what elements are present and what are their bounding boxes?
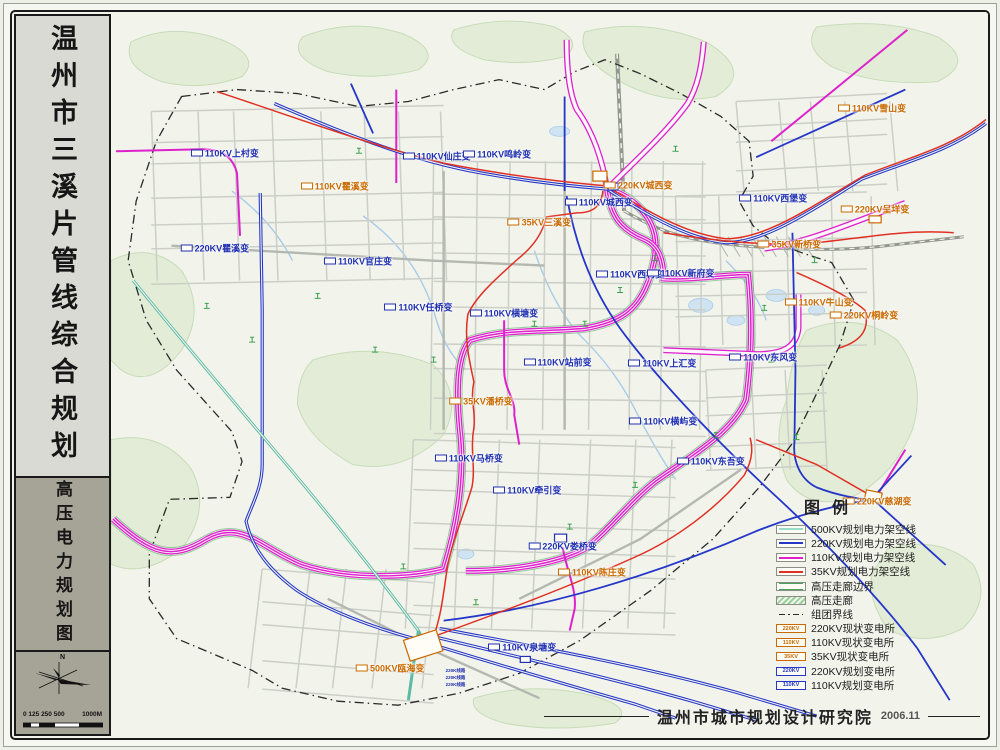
substation-label: 110KV牛山变 — [785, 296, 853, 309]
map-canvas: 110KV上村变110KV瞿溪变220KV瞿溪变110KV官庄变110KV任桥变… — [111, 12, 988, 738]
substation-name: 35KV三溪变 — [522, 215, 572, 228]
substation-name: 110KV横塘变 — [484, 307, 538, 320]
route-note: 220K线路 — [446, 675, 466, 681]
substation-name: 110KV泉塘变 — [502, 640, 556, 653]
legend-row: 500KV规划电力架空线 — [776, 524, 978, 535]
substation-name: 500KV瓯海变 — [370, 662, 425, 675]
substation-name: 110KV牵引变 — [507, 484, 561, 497]
substation-label: 110KV城西变 — [565, 195, 633, 208]
legend-symbol-station-icon: 220KV — [776, 624, 806, 633]
footer: 温州市城市规划设计研究院 2006.11 — [544, 704, 980, 728]
substation-label: 110KV仙庄变 — [403, 150, 471, 163]
substation-marker-icon — [301, 183, 313, 190]
substation-label: 110KV泉塘变 — [488, 640, 556, 653]
substation-marker-icon — [629, 417, 641, 424]
substation-marker-icon — [596, 270, 608, 277]
substation-name: 110KV上村变 — [205, 147, 259, 160]
substation-label: 35KV三溪变 — [508, 215, 572, 228]
legend-symbol-line-icon — [776, 553, 806, 562]
legend-row: 220KV220KV规划变电所 — [776, 666, 978, 677]
substation-marker-icon — [604, 182, 616, 189]
substation-label: 110KV新府变 — [647, 266, 715, 279]
substation-marker-icon — [508, 218, 520, 225]
substation-label: 110KV横屿变 — [629, 414, 697, 427]
legend-label: 110KV规划变电所 — [811, 678, 894, 693]
substation-label: 110KV陈庄变 — [558, 565, 626, 578]
legend-label: 500KV规划电力架空线 — [811, 522, 916, 537]
legend-symbol-double-icon — [776, 582, 806, 591]
substation-label: 110KV东吾变 — [677, 454, 745, 467]
route-note: 220K线路 — [446, 668, 466, 674]
substation-marker-icon — [838, 105, 850, 112]
substation-label: 110KV上汇变 — [628, 357, 696, 370]
substation-label: 110KV上村变 — [191, 147, 259, 160]
legend-row: 110KV110KV现状变电所 — [776, 637, 978, 648]
substation-label: 110KV任桥变 — [384, 301, 452, 314]
substation-label: 110KV牵引变 — [493, 484, 561, 497]
legend: 图例 500KV规划电力架空线220KV规划电力架空线110KV规划电力架空线3… — [776, 494, 978, 694]
legend-row: 组团界线 — [776, 609, 978, 620]
footer-rule-left — [544, 716, 649, 717]
substation-name: 35KV潘桥变 — [463, 394, 513, 407]
footer-date: 2006.11 — [881, 710, 920, 722]
legend-label: 110KV规划电力架空线 — [811, 550, 915, 565]
substation-marker-icon — [628, 360, 640, 367]
substation-label: 220KV娄桥变 — [528, 540, 597, 553]
footer-rule-right — [928, 716, 980, 717]
legend-row: 高压走廊 — [776, 595, 978, 606]
legend-label: 110KV现状变电所 — [811, 635, 894, 650]
substation-name: 220KV娄桥变 — [542, 540, 597, 553]
substation-label: 220KV桐岭变 — [830, 309, 899, 322]
substation-name: 110KV陈庄变 — [572, 565, 626, 578]
substation-label: 220KV城西变 — [604, 179, 673, 192]
substation-label: 35KV新桥变 — [758, 237, 822, 250]
substation-label: 110KV瞿溪变 — [301, 180, 369, 193]
substation-name: 110KV瞿溪变 — [315, 180, 369, 193]
substation-marker-icon — [830, 312, 842, 319]
route-note: 220K线路 — [446, 682, 466, 688]
legend-label: 组团界线 — [811, 607, 853, 622]
legend-symbol-line-icon — [776, 567, 806, 576]
substation-marker-icon — [524, 359, 536, 366]
substation-name: 110KV城西变 — [579, 195, 633, 208]
substation-name: 110KV马桥变 — [449, 451, 503, 464]
substation-marker-icon — [356, 665, 368, 672]
substation-label: 220KV呈垟变 — [841, 202, 910, 215]
substation-marker-icon — [493, 487, 505, 494]
legend-symbol-station-icon: 110KV — [776, 681, 806, 690]
substation-label: 500KV瓯海变 — [356, 662, 425, 675]
substation-name: 220KV桐岭变 — [844, 309, 899, 322]
map-title: 温州市三溪片管线综合规划 — [43, 24, 82, 468]
scale-ticks: 0 125 250 500 — [23, 711, 65, 718]
substation-label: 110KV雪山变 — [838, 102, 906, 115]
legend-symbol-line-icon — [776, 539, 806, 548]
map-title-box: 温州市三溪片管线综合规划 — [16, 16, 109, 478]
legend-label: 35KV现状变电所 — [811, 649, 889, 664]
substation-label: 110KV鸣岭变 — [463, 148, 531, 161]
substation-marker-icon — [449, 397, 461, 404]
legend-row: 110KV110KV规划变电所 — [776, 680, 978, 691]
substation-name: 110KV站前变 — [538, 356, 592, 369]
map-subtitle-box: 高压电力规划图 — [16, 478, 109, 652]
substation-name: 110KV东风变 — [743, 351, 797, 364]
substation-name: 220KV瞿溪变 — [195, 241, 250, 254]
legend-row: 35KV35KV现状变电所 — [776, 651, 978, 662]
substation-label: 220KV瞿溪变 — [181, 241, 250, 254]
substation-name: 110KV上汇变 — [642, 357, 696, 370]
legend-row: 35KV规划电力架空线 — [776, 566, 978, 577]
substation-marker-icon — [758, 240, 770, 247]
legend-row: 220KV220KV现状变电所 — [776, 623, 978, 634]
sidebar: 温州市三溪片管线综合规划 高压电力规划图 N 0 125 250 500 100… — [14, 14, 111, 736]
legend-symbol-corridor-icon — [776, 596, 806, 605]
scale-numbers: 0 125 250 500 1000M — [23, 711, 102, 718]
substation-label: 110KV横塘变 — [470, 307, 538, 320]
substation-marker-icon — [647, 269, 659, 276]
substation-name: 35KV新桥变 — [772, 237, 822, 250]
legend-label: 220KV规划电力架空线 — [811, 536, 916, 551]
substation-marker-icon — [463, 151, 475, 158]
legend-label: 高压走廊 — [811, 593, 853, 608]
substation-name: 220KV呈垟变 — [855, 202, 910, 215]
map-subtitle: 高压电力规划图 — [50, 480, 75, 648]
substation-marker-icon — [558, 568, 570, 575]
substation-name: 110KV雪山变 — [852, 102, 906, 115]
legend-symbol-station-icon: 220KV — [776, 667, 806, 676]
legend-symbol-line-icon — [776, 525, 806, 534]
substation-marker-icon — [384, 304, 396, 311]
substation-label: 110KV马桥变 — [435, 451, 503, 464]
substation-marker-icon — [435, 454, 447, 461]
legend-label: 高压走廊边界 — [811, 579, 874, 594]
substation-marker-icon — [528, 543, 540, 550]
substation-name: 110KV鸣岭变 — [477, 148, 531, 161]
substation-name: 110KV新府变 — [661, 266, 715, 279]
legend-symbol-dashdot-icon — [776, 610, 806, 619]
scale-bar — [23, 722, 103, 729]
substation-label: 110KV官庄变 — [324, 254, 392, 267]
legend-symbol-station-icon: 110KV — [776, 638, 806, 647]
scale-end: 1000M — [82, 711, 102, 718]
footer-org: 温州市城市规划设计研究院 — [657, 704, 873, 728]
substation-name: 110KV西堡变 — [753, 191, 807, 204]
substation-marker-icon — [470, 310, 482, 317]
legend-symbol-station-icon: 35KV — [776, 652, 806, 661]
substation-marker-icon — [565, 198, 577, 205]
substation-marker-icon — [841, 205, 853, 212]
substation-name: 110KV横屿变 — [643, 414, 697, 427]
substation-marker-icon — [488, 643, 500, 650]
substation-label: 110KV东风变 — [729, 351, 797, 364]
substation-label: 110KV站前变 — [524, 356, 592, 369]
legend-row: 220KV规划电力架空线 — [776, 538, 978, 549]
substation-name: 110KV官庄变 — [338, 254, 392, 267]
map-frame: 温州市三溪片管线综合规划 高压电力规划图 N 0 125 250 500 100… — [10, 10, 990, 740]
compass-icon — [33, 660, 93, 698]
legend-row: 高压走廊边界 — [776, 581, 978, 592]
legend-label: 220KV现状变电所 — [811, 621, 895, 636]
legend-label: 35KV规划电力架空线 — [811, 564, 910, 579]
compass-box: N 0 125 250 500 1000M — [16, 652, 109, 734]
legend-label: 220KV规划变电所 — [811, 664, 895, 679]
legend-items: 500KV规划电力架空线220KV规划电力架空线110KV规划电力架空线35KV… — [776, 524, 978, 691]
substation-marker-icon — [181, 244, 193, 251]
legend-row: 110KV规划电力架空线 — [776, 552, 978, 563]
substation-name: 110KV东吾变 — [691, 454, 745, 467]
substation-marker-icon — [324, 257, 336, 264]
substation-label: 35KV潘桥变 — [449, 394, 513, 407]
substation-marker-icon — [729, 354, 741, 361]
substation-marker-icon — [403, 153, 415, 160]
substation-name: 110KV任桥变 — [398, 301, 452, 314]
substation-name: 110KV牛山变 — [799, 296, 853, 309]
substation-marker-icon — [785, 299, 797, 306]
substation-marker-icon — [739, 194, 751, 201]
legend-title: 图例 — [804, 494, 978, 518]
substation-marker-icon — [677, 457, 689, 464]
substation-label: 110KV西堡变 — [739, 191, 807, 204]
substation-marker-icon — [191, 150, 203, 157]
substation-name: 220KV城西变 — [618, 179, 673, 192]
